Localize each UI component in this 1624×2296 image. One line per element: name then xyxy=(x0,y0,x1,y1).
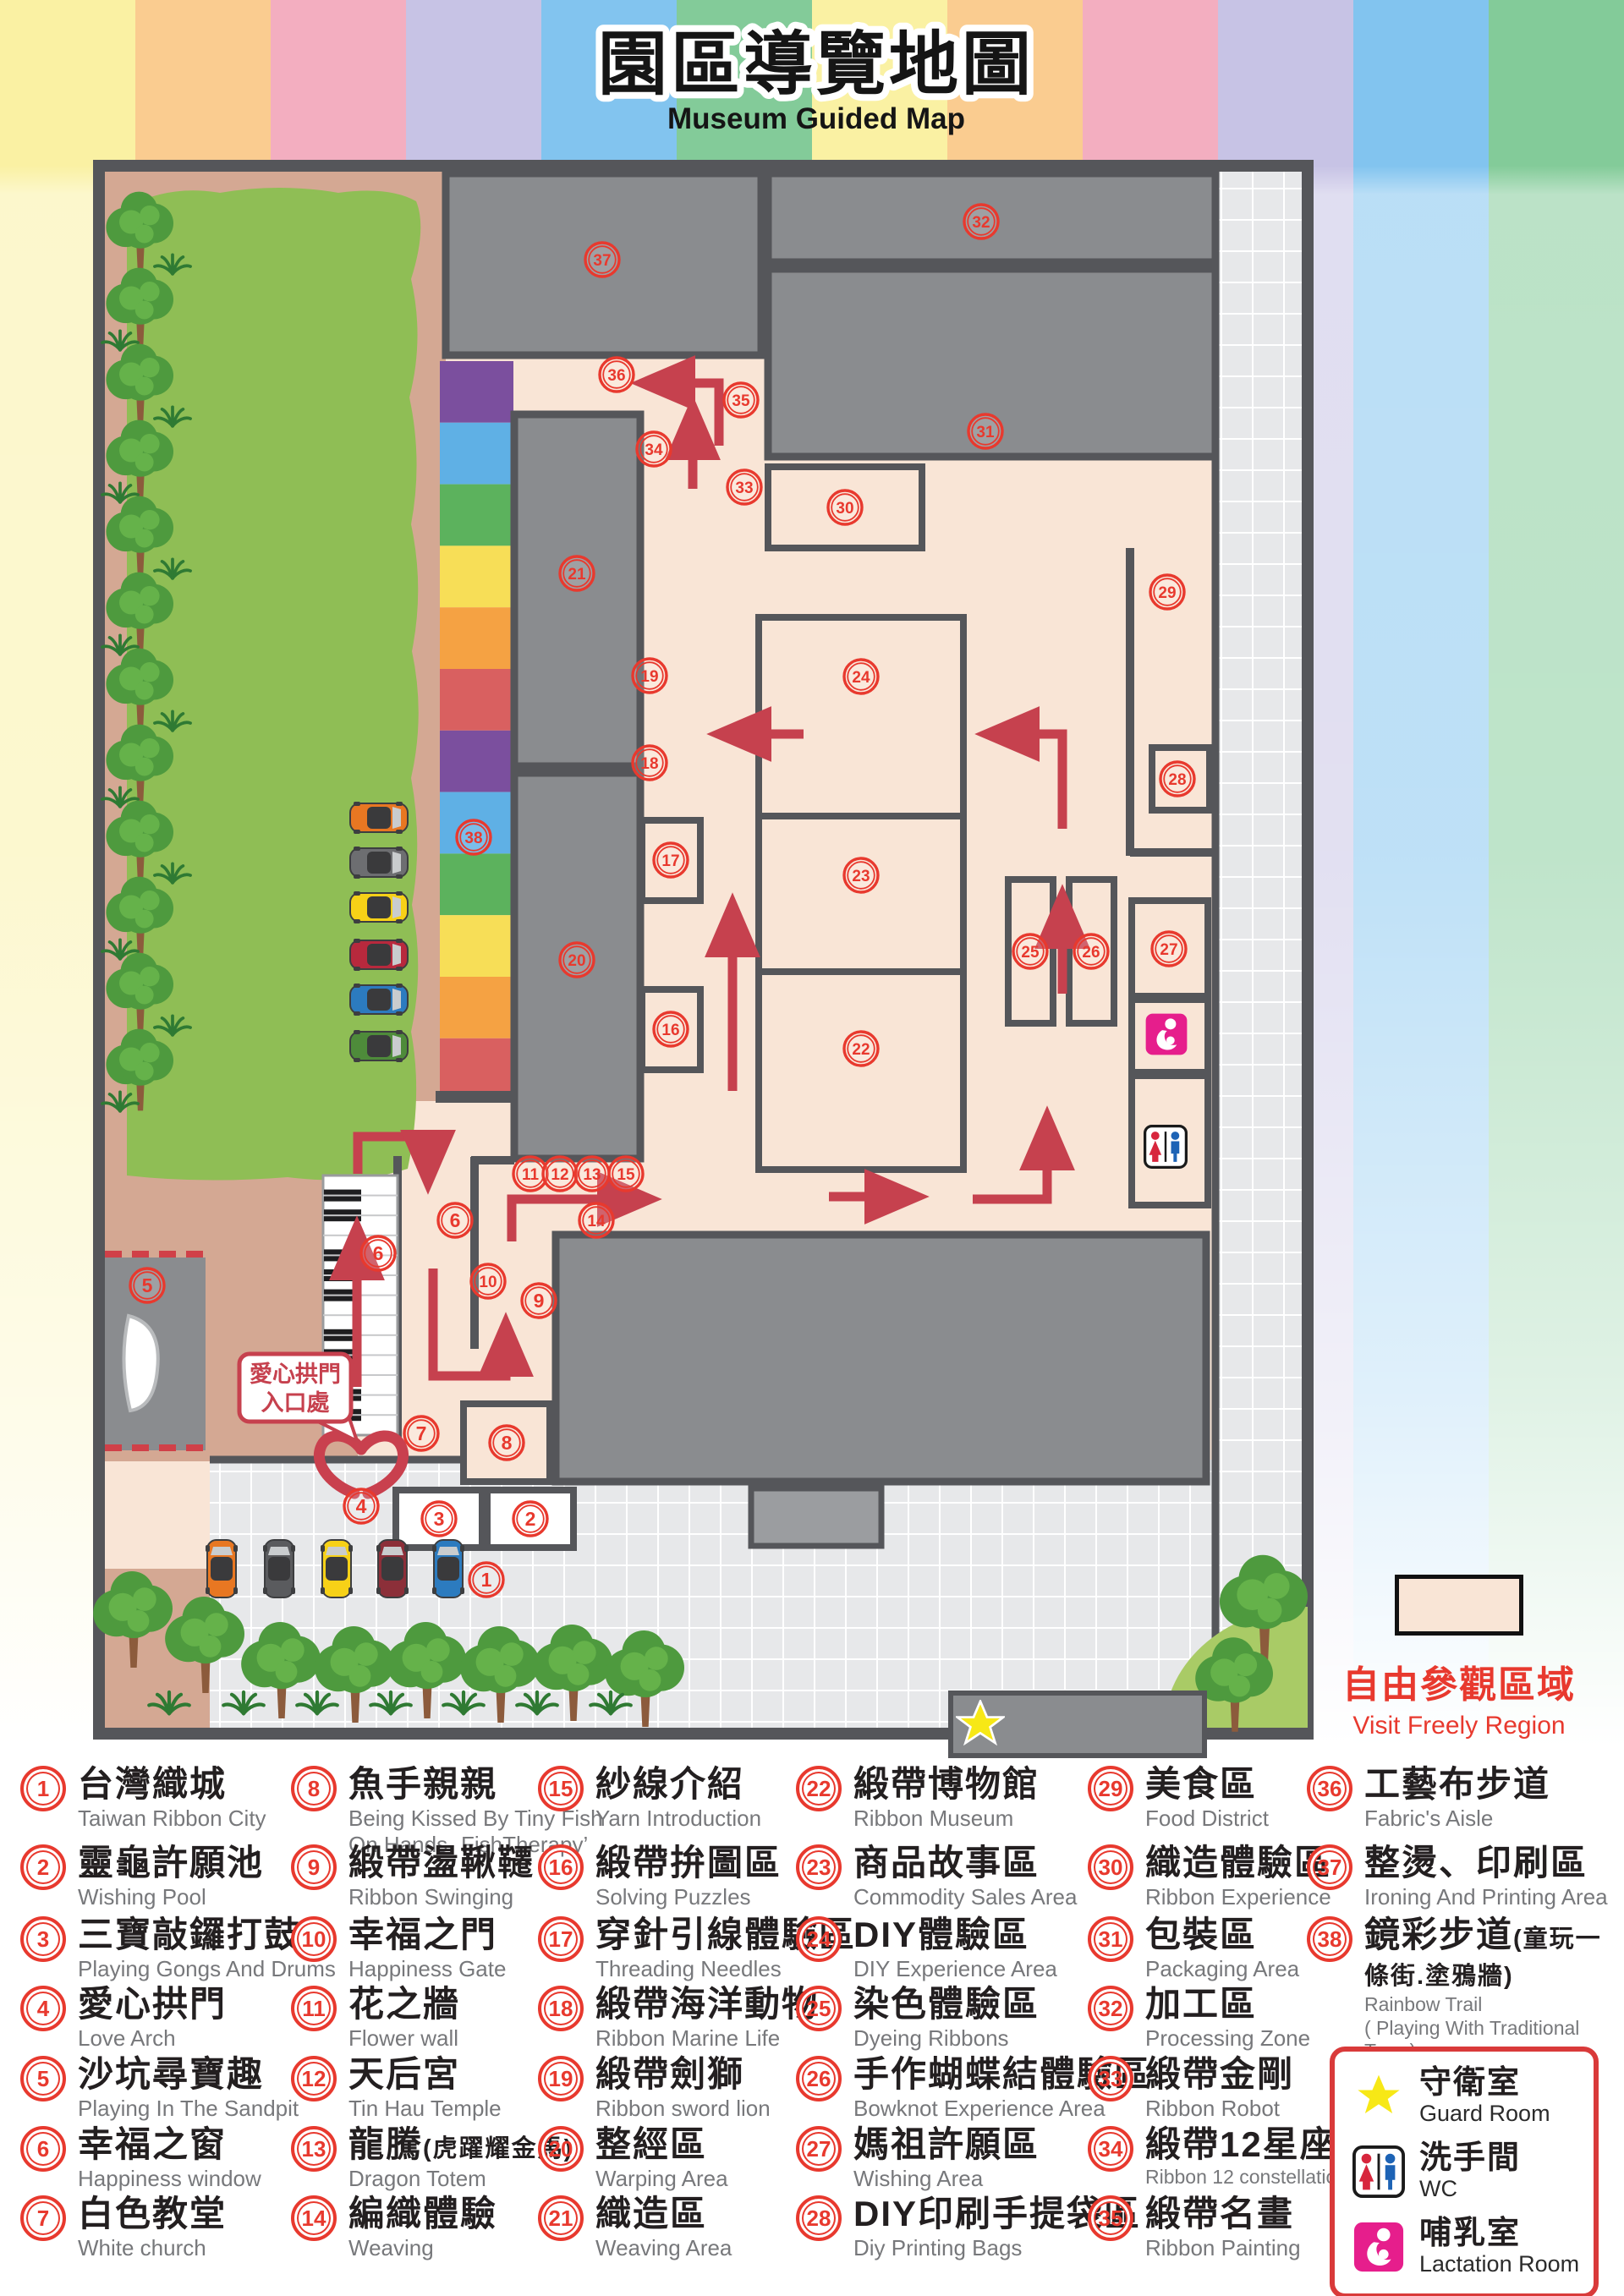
legend-item-25: 25 染色體驗區 Dyeing Ribbons xyxy=(796,1986,1040,2052)
svg-text:14: 14 xyxy=(587,1213,606,1230)
legend-label-zh: 緞帶12星座 xyxy=(1145,2124,1337,2164)
map-marker-33: 33 xyxy=(727,470,761,504)
entrance-callout-line1: 愛心拱門 xyxy=(250,1362,341,1387)
legend-number: 11 xyxy=(291,1986,337,2031)
legend-item-13: 13 龍騰(虎躍耀金馬) Dragon Totem xyxy=(291,2126,573,2192)
legend-item-12: 12 天后宮 Tin Hau Temple xyxy=(291,2056,502,2122)
svg-text:2: 2 xyxy=(525,1508,536,1530)
svg-text:26: 26 xyxy=(1082,944,1100,962)
legend-number: 18 xyxy=(538,1986,584,2031)
map-marker-7: 7 xyxy=(404,1417,438,1450)
legend-label-en: Ironing And Printing Area xyxy=(1364,1884,1608,1910)
legend-number: 8 xyxy=(291,1766,337,1811)
legend-number: 12 xyxy=(291,2056,337,2101)
svg-text:17: 17 xyxy=(661,852,679,870)
map-marker-5: 5 xyxy=(130,1269,164,1302)
legend-label-en: Yarn Introduction xyxy=(595,1806,761,1832)
legend-item-27: 27 媽祖許願區 Wishing Area xyxy=(796,2126,1040,2192)
legend-label-en: Ribbon Robot xyxy=(1145,2096,1294,2122)
car-icon xyxy=(350,802,408,834)
map-marker-4: 4 xyxy=(344,1489,378,1523)
legend-number: 26 xyxy=(796,2056,842,2101)
legend-item-4: 4 愛心拱門 Love Arch xyxy=(20,1986,227,2052)
legend-label-en: Weaving xyxy=(348,2235,497,2261)
car-icon xyxy=(376,1540,409,1597)
legend-label-en: Ribbon Experience xyxy=(1145,1884,1331,1910)
legend-label-zh: 白色教堂 xyxy=(78,2194,227,2233)
visit-freely-swatch xyxy=(1395,1575,1523,1636)
svg-text:4: 4 xyxy=(356,1495,367,1517)
legend-number: 10 xyxy=(291,1916,337,1962)
legend-item-29: 29 美食區 Food District xyxy=(1088,1766,1269,1832)
entrance-callout-line2: 入口處 xyxy=(261,1390,330,1416)
map-marker-15: 15 xyxy=(609,1157,643,1191)
car-icon xyxy=(350,984,408,1016)
map-marker-14: 14 xyxy=(579,1203,613,1237)
legend-label-zh: 媽祖許願區 xyxy=(853,2124,1040,2164)
legend-number: 14 xyxy=(291,2195,337,2241)
page-title: 園區導覽地圖 xyxy=(598,26,1034,103)
legend-label-en: Fabric's Aisle xyxy=(1364,1806,1550,1832)
svg-text:18: 18 xyxy=(640,755,658,773)
legend-item-19: 19 緞帶劍獅 Ribbon sword lion xyxy=(538,2056,771,2122)
facility-label-en: Guard Room xyxy=(1419,2101,1550,2127)
map-marker-25: 25 xyxy=(1013,934,1047,968)
car-icon xyxy=(350,847,408,879)
visit-freely-legend: 自由參觀區域 Visit Freely Region xyxy=(1319,1575,1599,1740)
legend-item-3: 3 三寶敲鑼打鼓 Playing Gongs And Drums xyxy=(20,1916,336,1982)
map-marker-35: 35 xyxy=(724,383,758,417)
map-marker-17: 17 xyxy=(654,843,688,877)
legend-label-zh: 幸福之門 xyxy=(348,1915,497,1954)
facility-label-zh: 洗手間 xyxy=(1419,2142,1521,2176)
svg-text:22: 22 xyxy=(852,1041,870,1059)
facility-row: 洗手間 WC xyxy=(1352,2142,1594,2202)
legend-item-2: 2 靈龜許願池 Wishing Pool xyxy=(20,1844,264,1910)
legend-number: 4 xyxy=(20,1986,66,2031)
legend-label-zh: 靈龜許願池 xyxy=(78,1843,264,1882)
svg-text:36: 36 xyxy=(607,367,625,385)
svg-text:38: 38 xyxy=(464,830,482,847)
map-marker-34: 34 xyxy=(637,432,671,466)
svg-text:21: 21 xyxy=(568,566,586,584)
legend-label-zh: 緞帶海洋動物 xyxy=(595,1984,819,2024)
car-icon xyxy=(350,939,408,971)
legend-label-en: Happiness window xyxy=(78,2166,261,2192)
legend-number: 24 xyxy=(796,1916,842,1962)
map-marker-9: 9 xyxy=(522,1284,556,1318)
map-marker-38: 38 xyxy=(457,820,491,854)
legend-number: 2 xyxy=(20,1844,66,1890)
legend-label-en: Ribbon Swinging xyxy=(348,1884,535,1910)
legend-label-zh: 緞帶拚圖區 xyxy=(595,1843,782,1882)
facility-row: 守衛室 Guard Room xyxy=(1352,2067,1594,2127)
legend-label-en: Ribbon Museum xyxy=(853,1806,1040,1832)
legend-label-en: Ribbon sword lion xyxy=(595,2096,771,2122)
legend-number: 16 xyxy=(538,1844,584,1890)
svg-text:31: 31 xyxy=(976,424,995,441)
map-marker-29: 29 xyxy=(1150,575,1184,609)
building-main xyxy=(556,1235,1206,1482)
legend-item-23: 23 商品故事區 Commodity Sales Area xyxy=(796,1844,1077,1910)
legend-item-15: 15 紗線介紹 Yarn Introduction xyxy=(538,1766,761,1832)
map-marker-18: 18 xyxy=(633,746,667,780)
legend-label-zh: 愛心拱門 xyxy=(78,1984,227,2024)
legend-label-zh: 工藝布步道 xyxy=(1364,1764,1550,1804)
map-marker-2: 2 xyxy=(513,1502,547,1536)
legend-number: 15 xyxy=(538,1766,584,1811)
svg-text:29: 29 xyxy=(1158,584,1176,602)
map-marker-24: 24 xyxy=(844,660,878,693)
legend-label-zh: 魚手親親 xyxy=(348,1764,497,1804)
svg-text:9: 9 xyxy=(534,1290,545,1312)
legend-label-zh: 紗線介紹 xyxy=(595,1764,744,1804)
map-marker-8: 8 xyxy=(490,1426,524,1460)
svg-text:7: 7 xyxy=(416,1422,427,1444)
svg-text:24: 24 xyxy=(852,669,870,687)
legend-item-38: 38 鏡彩步道(童玩一條街.塗鴉牆) Rainbow Trail( Playin… xyxy=(1307,1916,1624,2063)
legend-number: 19 xyxy=(538,2056,584,2101)
legend-item-30: 30 織造體驗區 Ribbon Experience xyxy=(1088,1844,1331,1910)
legend-label-zh: 編織體驗 xyxy=(348,2194,497,2233)
svg-text:10: 10 xyxy=(479,1274,497,1291)
facility-row: 哺乳室 Lactation Room xyxy=(1352,2217,1594,2277)
facility-label-zh: 守衛室 xyxy=(1419,2067,1550,2101)
legend-item-20: 20 整經區 Warping Area xyxy=(538,2126,728,2192)
legend-label-zh: 商品故事區 xyxy=(853,1843,1040,1882)
legend-number: 20 xyxy=(538,2126,584,2172)
map-marker-21: 21 xyxy=(560,556,594,590)
facility-label-zh: 哺乳室 xyxy=(1419,2217,1579,2251)
legend-label-zh: 三寶敲鑼打鼓 xyxy=(78,1915,301,1954)
map-marker-36: 36 xyxy=(600,358,634,392)
legend-number: 17 xyxy=(538,1916,584,1962)
legend-number: 9 xyxy=(291,1844,337,1890)
legend-label-en: Commodity Sales Area xyxy=(853,1884,1077,1910)
legend-label-en: Playing In The Sandpit xyxy=(78,2096,299,2122)
map-marker-20: 20 xyxy=(560,943,594,977)
legend-label-zh: 緞帶博物館 xyxy=(853,1764,1040,1804)
legend-number: 34 xyxy=(1088,2126,1133,2172)
legend-number: 28 xyxy=(796,2195,842,2241)
svg-text:23: 23 xyxy=(852,868,870,885)
legend-label-en: Processing Zone xyxy=(1145,2025,1310,2052)
legend-label-zh: DIY體驗區 xyxy=(853,1915,1029,1954)
legend-label-zh: 緞帶名畫 xyxy=(1145,2194,1294,2233)
legend-item-5: 5 沙坑尋寶趣 Playing In The Sandpit xyxy=(20,2056,299,2122)
legend-label-zh: 緞帶劍獅 xyxy=(595,2054,744,2094)
legend-item-33: 33 緞帶金剛 Ribbon Robot xyxy=(1088,2056,1294,2122)
legend-number: 5 xyxy=(20,2056,66,2101)
legend-label-en: Dyeing Ribbons xyxy=(853,2025,1040,2052)
map-marker-12: 12 xyxy=(543,1157,577,1191)
page-subtitle: Museum Guided Map xyxy=(667,102,965,135)
legend-number: 38 xyxy=(1307,1916,1352,1962)
facility-legend: 守衛室 Guard Room 洗手間 WC 哺乳室 Lactation Room xyxy=(1330,2047,1599,2296)
svg-text:12: 12 xyxy=(551,1166,568,1184)
map-marker-3: 3 xyxy=(422,1502,456,1536)
legend-label-zh: 美食區 xyxy=(1145,1764,1257,1804)
legend-number: 33 xyxy=(1088,2056,1133,2101)
svg-text:34: 34 xyxy=(645,441,663,459)
map-marker-32: 32 xyxy=(964,205,998,238)
map-marker-26: 26 xyxy=(1074,934,1108,968)
legend-item-36: 36 工藝布步道 Fabric's Aisle xyxy=(1307,1766,1550,1832)
svg-text:1: 1 xyxy=(481,1569,492,1591)
legend-label-en: White church xyxy=(78,2235,227,2261)
map-marker-6: 6 xyxy=(361,1236,395,1270)
legend-label-zh: 整燙、印刷區 xyxy=(1364,1843,1588,1882)
svg-text:16: 16 xyxy=(661,1022,679,1039)
legend-item-11: 11 花之牆 Flower wall xyxy=(291,1986,460,2052)
legend-label-zh: 染色體驗區 xyxy=(853,1984,1040,2024)
svg-text:3: 3 xyxy=(434,1508,445,1530)
rainbow-wall xyxy=(440,361,513,1100)
legend-label-en: Food District xyxy=(1145,1806,1269,1832)
legend-label-en: Weaving Area xyxy=(595,2235,732,2261)
map-marker-22: 22 xyxy=(844,1032,878,1066)
legend-label-en: Wishing Pool xyxy=(78,1884,264,1910)
legend-label-en: Ribbon Marine Life xyxy=(595,2025,819,2052)
map-marker-13: 13 xyxy=(575,1157,609,1191)
legend-item-10: 10 幸福之門 Happiness Gate xyxy=(291,1916,506,1982)
svg-text:11: 11 xyxy=(522,1166,540,1184)
map-marker-27: 27 xyxy=(1152,932,1186,966)
legend-label-en: Warping Area xyxy=(595,2166,728,2192)
legend-number: 6 xyxy=(20,2126,66,2172)
lactation-icon xyxy=(1352,2220,1406,2274)
legend-label-zh: 整經區 xyxy=(595,2124,707,2164)
legend-label-zh: 幸福之窗 xyxy=(78,2124,227,2164)
legend-label-zh: 花之牆 xyxy=(348,1984,460,2024)
page-title-group: 園區導覽地圖 園區導覽地圖 Museum Guided Map xyxy=(598,26,1034,135)
visit-freely-label-zh: 自由參觀區域 xyxy=(1319,1654,1599,1708)
car-icon xyxy=(350,1030,408,1062)
legend-label-zh: 台灣織城 xyxy=(78,1764,227,1804)
legend-label-zh: 天后宮 xyxy=(348,2054,460,2094)
legend-number: 7 xyxy=(20,2195,66,2241)
legend-item-18: 18 緞帶海洋動物 Ribbon Marine Life xyxy=(538,1986,819,2052)
svg-text:13: 13 xyxy=(583,1166,601,1184)
legend-item-31: 31 包裝區 Packaging Area xyxy=(1088,1916,1299,1982)
legend-number: 35 xyxy=(1088,2195,1133,2241)
legend-item-32: 32 加工區 Processing Zone xyxy=(1088,1986,1310,2052)
facility-label-en: Lactation Room xyxy=(1419,2251,1579,2277)
legend-item-24: 24 DIY體驗區 DIY Experience Area xyxy=(796,1916,1057,1982)
svg-text:32: 32 xyxy=(972,214,990,232)
legend-number: 30 xyxy=(1088,1844,1133,1890)
legend-number: 3 xyxy=(20,1916,66,1962)
legend-label-zh: 緞帶金剛 xyxy=(1145,2054,1294,2094)
legend-item-9: 9 緞帶盪鞦韆 Ribbon Swinging xyxy=(291,1844,535,1910)
legend-number: 29 xyxy=(1088,1766,1133,1811)
map-marker-1: 1 xyxy=(469,1563,503,1597)
svg-text:6: 6 xyxy=(450,1209,461,1231)
map-marker-30: 30 xyxy=(828,490,862,524)
legend-item-1: 1 台灣織城 Taiwan Ribbon City xyxy=(20,1766,266,1832)
legend-label-en: DIY Experience Area xyxy=(853,1956,1057,1982)
legend-number: 23 xyxy=(796,1844,842,1890)
legend-label-en: Tin Hau Temple xyxy=(348,2096,502,2122)
svg-text:5: 5 xyxy=(142,1274,153,1296)
guard-room xyxy=(951,1693,1204,1756)
car-icon xyxy=(263,1540,295,1597)
lactation-icon xyxy=(1146,1014,1188,1055)
legend-item-22: 22 緞帶博物館 Ribbon Museum xyxy=(796,1766,1040,1832)
legend-number: 22 xyxy=(796,1766,842,1811)
map-marker-10: 10 xyxy=(471,1264,505,1298)
car-icon xyxy=(321,1540,353,1597)
legend-item-14: 14 編織體驗 Weaving xyxy=(291,2195,497,2261)
legend-label-en: Wishing Area xyxy=(853,2166,1040,2192)
car-icon xyxy=(432,1540,464,1597)
legend-item-37: 37 整燙、印刷區 Ironing And Printing Area xyxy=(1307,1844,1608,1910)
svg-text:25: 25 xyxy=(1021,944,1040,962)
legend-label-zh: 緞帶盪鞦韆 xyxy=(348,1843,535,1882)
svg-text:33: 33 xyxy=(735,479,753,497)
svg-text:28: 28 xyxy=(1168,771,1186,789)
legend-label-zh: 鏡彩步道(童玩一條街.塗鴉牆) xyxy=(1364,1915,1602,1992)
visit-freely-label-en: Visit Freely Region xyxy=(1319,1712,1599,1740)
legend-label-zh: 沙坑尋寶趣 xyxy=(78,2054,264,2094)
map-marker-31: 31 xyxy=(968,414,1002,448)
facility-label-en: WC xyxy=(1419,2176,1521,2202)
legend-number: 21 xyxy=(538,2195,584,2241)
map-marker-37: 37 xyxy=(585,243,619,277)
svg-text:30: 30 xyxy=(836,500,853,518)
legend-number: 36 xyxy=(1307,1766,1352,1811)
museum-guided-map-page: 愛心拱門 入口處 1234566789101112131514161718192… xyxy=(0,0,1624,2296)
map-marker-28: 28 xyxy=(1160,762,1194,796)
svg-text:37: 37 xyxy=(593,252,611,270)
legend-item-16: 16 緞帶拚圖區 Solving Puzzles xyxy=(538,1844,782,1910)
map-marker-23: 23 xyxy=(844,858,878,892)
wc-icon xyxy=(1145,1126,1187,1168)
map-marker-6: 6 xyxy=(438,1203,472,1237)
map-marker-19: 19 xyxy=(633,659,667,693)
legend-label-en: Happiness Gate xyxy=(348,1956,506,1982)
legend-label-en: Taiwan Ribbon City xyxy=(78,1806,266,1832)
svg-text:15: 15 xyxy=(617,1166,635,1184)
svg-text:19: 19 xyxy=(640,668,658,686)
legend-label-zh: 織造體驗區 xyxy=(1145,1843,1331,1882)
legend-item-6: 6 幸福之窗 Happiness window xyxy=(20,2126,261,2192)
car-icon xyxy=(350,891,408,923)
legend-label-en: Ribbon Painting xyxy=(1145,2235,1301,2261)
svg-text:35: 35 xyxy=(732,392,750,410)
legend-item-7: 7 白色教堂 White church xyxy=(20,2195,227,2261)
car-icon xyxy=(206,1540,238,1597)
legend-label-zh: 包裝區 xyxy=(1145,1915,1257,1954)
legend-number: 37 xyxy=(1307,1844,1352,1890)
legend-number: 25 xyxy=(796,1986,842,2031)
legend-item-34: 34 緞帶12星座 Ribbon 12 constellation xyxy=(1088,2126,1347,2189)
wc-icon xyxy=(1352,2145,1406,2199)
svg-text:8: 8 xyxy=(502,1432,513,1454)
legend-label-en: Love Arch xyxy=(78,2025,227,2052)
legend-label-en: Solving Puzzles xyxy=(595,1884,782,1910)
svg-text:27: 27 xyxy=(1160,941,1177,959)
star-icon xyxy=(1352,2069,1406,2123)
legend-number: 27 xyxy=(796,2126,842,2172)
svg-text:6: 6 xyxy=(373,1242,384,1264)
legend-item-21: 21 織造區 Weaving Area xyxy=(538,2195,732,2261)
legend-label-en: Flower wall xyxy=(348,2025,460,2052)
legend-number: 31 xyxy=(1088,1916,1133,1962)
svg-text:20: 20 xyxy=(568,952,585,970)
legend-number: 13 xyxy=(291,2126,337,2172)
legend-label-zh: 織造區 xyxy=(595,2194,707,2233)
legend-label-en: Packaging Area xyxy=(1145,1956,1299,1982)
legend-number: 32 xyxy=(1088,1986,1133,2031)
legend-label-en: Ribbon 12 constellation xyxy=(1145,2166,1347,2189)
map-base xyxy=(100,171,1303,1729)
legend-number: 1 xyxy=(20,1766,66,1811)
map-marker-16: 16 xyxy=(654,1012,688,1046)
legend-label-zh: 加工區 xyxy=(1145,1984,1257,2024)
legend-item-35: 35 緞帶名畫 Ribbon Painting xyxy=(1088,2195,1301,2261)
